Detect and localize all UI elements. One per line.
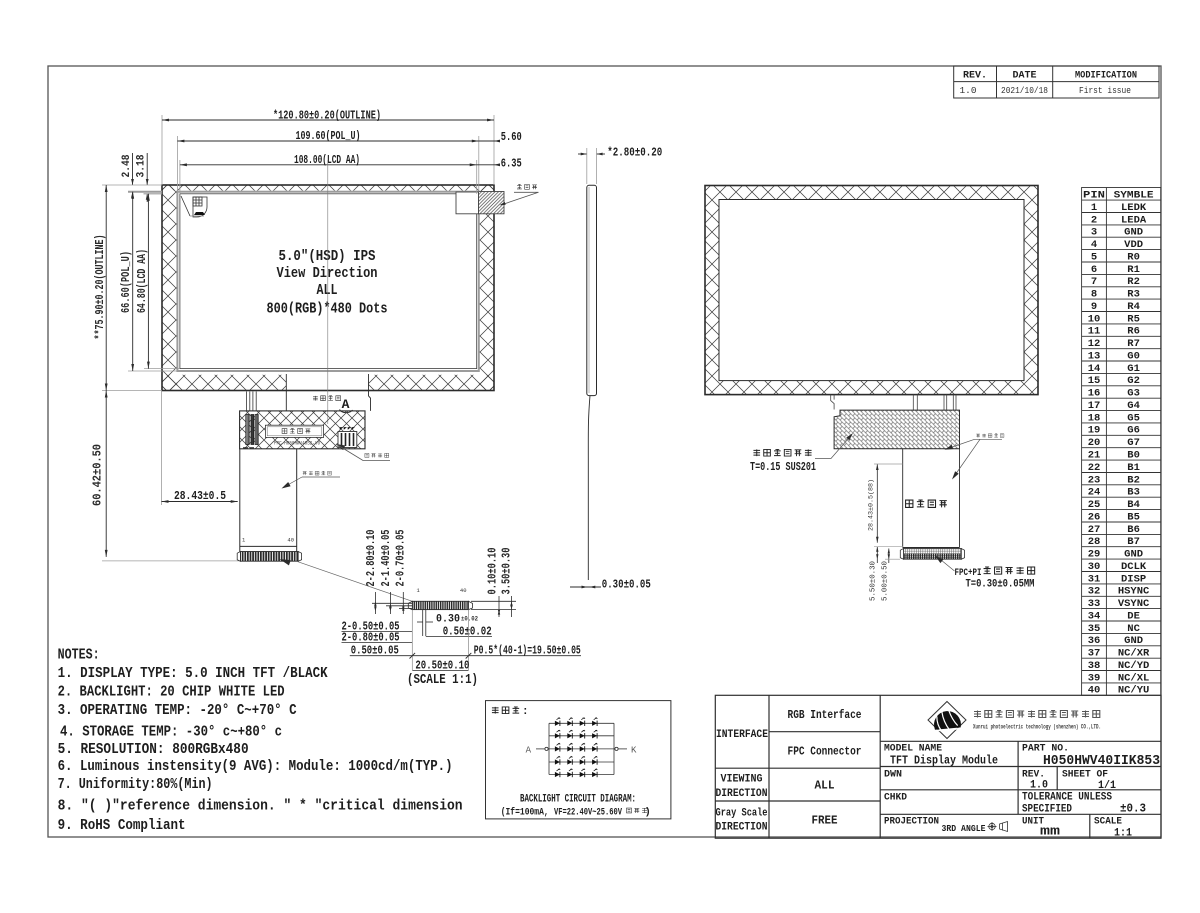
svg-text:3.18: 3.18 (136, 154, 148, 177)
svg-text:DIRECTION: DIRECTION (716, 822, 768, 834)
svg-text:15: 15 (1088, 375, 1101, 387)
svg-text:4: 4 (1091, 239, 1097, 251)
svg-text:NC: NC (1127, 623, 1140, 635)
svg-text:R6: R6 (1127, 326, 1140, 338)
svg-text:1: 1 (417, 587, 421, 594)
svg-text:INTERFACE: INTERFACE (716, 729, 768, 741)
svg-text:32: 32 (1088, 586, 1101, 598)
svg-text:R1: R1 (1127, 264, 1140, 276)
svg-text:DIRECTION: DIRECTION (716, 788, 768, 800)
svg-text:RGB Interface: RGB Interface (788, 709, 862, 722)
svg-text:18: 18 (1088, 412, 1101, 424)
svg-text:A: A (526, 746, 532, 756)
svg-text:*120.80±0.20(OUTLINE): *120.80±0.20(OUTLINE) (273, 108, 381, 122)
svg-text:FPC+PI: FPC+PI (955, 568, 982, 579)
svg-text:39: 39 (1088, 672, 1101, 684)
svg-text:VF=22.40V~25.60V: VF=22.40V~25.60V (554, 807, 622, 819)
svg-text:38: 38 (1088, 660, 1101, 672)
svg-text:14: 14 (1088, 363, 1101, 375)
svg-text:8. ″( )″reference dimension. ″: 8. ″( )″reference dimension. ″ * ″critic… (58, 799, 463, 815)
svg-text:13: 13 (1088, 351, 1101, 363)
svg-text:R3: R3 (1127, 289, 1140, 301)
svg-text:G5: G5 (1127, 412, 1140, 424)
svg-text:3: 3 (1091, 227, 1097, 239)
svg-text:G0: G0 (1127, 351, 1140, 363)
svg-text:1.0: 1.0 (960, 86, 977, 96)
svg-text:BACKLIGHT CIRCUIT DIAGRAM:: BACKLIGHT CIRCUIT DIAGRAM: (520, 794, 636, 806)
svg-text:LEDA: LEDA (1121, 214, 1147, 226)
svg-text:3.50±0.30: 3.50±0.30 (501, 547, 514, 594)
svg-text:FREE: FREE (812, 815, 838, 828)
svg-text:25: 25 (1088, 499, 1101, 511)
svg-text:G7: G7 (1127, 437, 1140, 449)
svg-text:19: 19 (1088, 425, 1101, 437)
svg-text:10: 10 (1088, 313, 1101, 325)
svg-text:View Direction: View Direction (277, 265, 378, 282)
svg-text:2-1.40±0.05: 2-1.40±0.05 (380, 529, 393, 586)
svg-text:6: 6 (1091, 264, 1097, 276)
svg-text:0.30: 0.30 (436, 614, 460, 626)
svg-text:2.48: 2.48 (121, 154, 133, 177)
svg-text:9: 9 (1091, 301, 1097, 313)
svg-text:8: 8 (1091, 289, 1097, 301)
svg-text:36: 36 (1088, 635, 1101, 647)
svg-text:21: 21 (1088, 450, 1101, 462)
svg-text:LEDK: LEDK (1121, 202, 1147, 214)
svg-text:NC/XR: NC/XR (1118, 648, 1150, 660)
svg-text:(SCALE 1:1): (SCALE 1:1) (407, 673, 478, 688)
svg-text:800(RGB)*480 Dots: 800(RGB)*480 Dots (267, 301, 388, 318)
svg-text:31: 31 (1088, 573, 1101, 585)
svg-text:33: 33 (1088, 598, 1101, 610)
svg-text:5.0″(HSD) IPS: 5.0″(HSD) IPS (279, 248, 376, 265)
svg-text:23: 23 (1088, 474, 1101, 486)
svg-text:SYMBLE: SYMBLE (1114, 190, 1154, 202)
svg-text:PIN: PIN (1083, 190, 1105, 202)
svg-text:TOLERANCE UNLESS: TOLERANCE UNLESS (1022, 792, 1112, 804)
svg-text:2-0.70±0.05: 2-0.70±0.05 (395, 529, 408, 586)
svg-text:REV.: REV. (963, 71, 987, 82)
svg-text:Gray Scale: Gray Scale (716, 808, 768, 820)
svg-text:R0: R0 (1127, 251, 1140, 263)
svg-text:109.60(POL_U): 109.60(POL_U) (296, 129, 361, 143)
svg-text:NC/XL: NC/XL (1118, 672, 1150, 684)
svg-text:SCALE: SCALE (1094, 817, 1122, 828)
svg-text:5.60: 5.60 (501, 130, 522, 144)
svg-text:MODIFICATION: MODIFICATION (1075, 71, 1137, 82)
svg-text:G2: G2 (1127, 375, 1140, 387)
svg-text:27: 27 (1088, 524, 1101, 536)
svg-text:6. Luminous instensity(9 AVG):: 6. Luminous instensity(9 AVG): Module: 1… (58, 759, 453, 775)
svg-text:0.10±0.10: 0.10±0.10 (487, 547, 500, 594)
svg-text:1: 1 (242, 537, 246, 544)
svg-text::: : (522, 706, 529, 718)
svg-text:B2: B2 (1127, 474, 1140, 486)
svg-text:T=0.30±0.05MM: T=0.30±0.05MM (966, 579, 1035, 591)
svg-text:K: K (631, 746, 637, 756)
svg-text:VIEWING: VIEWING (721, 774, 763, 786)
svg-text:B0: B0 (1127, 450, 1140, 462)
svg-text:B5: B5 (1127, 511, 1140, 523)
svg-text:FPC Connector: FPC Connector (788, 746, 862, 759)
svg-text:NC/YD: NC/YD (1118, 660, 1150, 672)
svg-text:FPC-H050HWV40S2-V0: FPC-H050HWV40S2-V0 (274, 441, 320, 447)
svg-text:28.43±0.5(88): 28.43±0.5(88) (868, 479, 875, 531)
svg-text:1/1: 1/1 (1098, 780, 1116, 792)
svg-text:26: 26 (1088, 511, 1101, 523)
svg-text:GND: GND (1124, 635, 1143, 647)
svg-text:5: 5 (1091, 251, 1097, 263)
svg-text:G4: G4 (1127, 400, 1140, 412)
svg-text:108.00(LCD AA): 108.00(LCD AA) (294, 153, 360, 167)
svg-text:H050HWV40IIK853: H050HWV40IIK853 (1043, 754, 1160, 769)
svg-text:*2.80±0.20: *2.80±0.20 (607, 146, 662, 160)
svg-text:34: 34 (1088, 610, 1101, 622)
svg-text:**75.90±0.20(OUTLINE): **75.90±0.20(OUTLINE) (93, 235, 107, 340)
svg-text:First issue: First issue (1079, 86, 1131, 96)
svg-text:17: 17 (1088, 400, 1101, 412)
svg-text:28.43±0.5: 28.43±0.5 (174, 489, 226, 503)
svg-text:1: 1 (1091, 202, 1097, 214)
svg-text:20: 20 (1088, 437, 1101, 449)
svg-text:3. OPERATING TEMP: -20° C~+70: 3. OPERATING TEMP: -20° C~+70° C (58, 703, 297, 719)
svg-text:): ) (645, 807, 651, 819)
svg-text:3RD ANGLE: 3RD ANGLE (942, 823, 986, 834)
svg-text:28: 28 (1088, 536, 1101, 548)
svg-text:NOTES:: NOTES: (58, 648, 100, 664)
svg-text:±0.3: ±0.3 (1120, 803, 1146, 816)
svg-text:Xunrui photoelectric technolog: Xunrui photoelectric technology (shenzhe… (973, 724, 1101, 731)
svg-text:DISP: DISP (1121, 573, 1146, 585)
svg-text:64.80(LCD AA): 64.80(LCD AA) (135, 249, 149, 313)
svg-text:1. DISPLAY TYPE: 5.0 INCH TFT: 1. DISPLAY TYPE: 5.0 INCH TFT /BLACK (58, 666, 328, 682)
svg-text:30: 30 (1088, 561, 1101, 573)
svg-text:R4: R4 (1127, 301, 1140, 313)
svg-text:12: 12 (1088, 338, 1101, 350)
svg-text:B4: B4 (1127, 499, 1140, 511)
svg-text:1.0: 1.0 (1030, 780, 1048, 792)
svg-text:5.00±0.50: 5.00±0.50 (882, 561, 890, 601)
svg-text:16: 16 (1088, 388, 1101, 400)
svg-text:MODEL NAME: MODEL NAME (884, 744, 942, 755)
svg-text:24: 24 (1088, 487, 1101, 499)
svg-text:2-2.80±0.10: 2-2.80±0.10 (365, 529, 378, 586)
svg-text:CHKD: CHKD (884, 793, 907, 804)
svg-text:R5: R5 (1127, 313, 1140, 325)
svg-text:(If=100mA,: (If=100mA, (501, 807, 549, 819)
svg-text:GND: GND (1124, 549, 1143, 561)
svg-text:VDD: VDD (1124, 239, 1143, 251)
svg-text:ALL: ALL (317, 282, 338, 299)
svg-text:SHEET OF: SHEET OF (1062, 770, 1108, 781)
svg-text:VSYNC: VSYNC (1118, 598, 1150, 610)
svg-text:DCLK: DCLK (1121, 561, 1147, 573)
svg-text:11: 11 (1088, 326, 1101, 338)
svg-text:2: 2 (1091, 214, 1097, 226)
svg-text:29: 29 (1088, 549, 1101, 561)
svg-text:±0.02: ±0.02 (461, 616, 478, 623)
svg-text:R7: R7 (1127, 338, 1140, 350)
svg-text:40: 40 (287, 537, 294, 544)
svg-text:DATE: DATE (1013, 71, 1037, 82)
svg-text:40: 40 (460, 587, 467, 594)
svg-text:B7: B7 (1127, 536, 1140, 548)
svg-text:60.42±0.50: 60.42±0.50 (91, 444, 105, 506)
svg-text:22: 22 (1088, 462, 1101, 474)
svg-text:4. STORAGE TEMP: -30° c~+80°: 4. STORAGE TEMP: -30° c~+80° c (60, 725, 282, 741)
svg-text:PART NO.: PART NO. (1022, 744, 1069, 755)
svg-text:0.30±0.05: 0.30±0.05 (602, 578, 651, 592)
svg-text:9. RoHS Compliant: 9. RoHS Compliant (58, 818, 186, 834)
svg-text:35: 35 (1088, 623, 1101, 635)
svg-text:mm: mm (1040, 824, 1060, 839)
svg-text:1:1: 1:1 (1114, 828, 1132, 840)
svg-text:B6: B6 (1127, 524, 1140, 536)
svg-text:G6: G6 (1127, 425, 1140, 437)
svg-text:2021/10/18: 2021/10/18 (1001, 86, 1048, 96)
svg-text:6.35: 6.35 (501, 157, 522, 171)
svg-text:HSYNC: HSYNC (1118, 586, 1150, 598)
svg-text:5.50±0.30: 5.50±0.30 (870, 561, 878, 601)
svg-text:B3: B3 (1127, 487, 1140, 499)
svg-text:DWN: DWN (884, 770, 902, 781)
svg-text:37: 37 (1088, 648, 1101, 660)
svg-text:5. RESOLUTION: 800RGBx480: 5. RESOLUTION: 800RGBx480 (58, 742, 249, 758)
svg-text:7. Uniformity:80%(Min): 7. Uniformity:80%(Min) (58, 777, 213, 793)
svg-text:SPECIFIED: SPECIFIED (1022, 804, 1072, 816)
svg-text:B1: B1 (1127, 462, 1140, 474)
svg-text:G3: G3 (1127, 388, 1140, 400)
svg-text:PROJECTION: PROJECTION (884, 817, 939, 828)
svg-text:G1: G1 (1127, 363, 1140, 375)
svg-text:T=0.15 SUS201: T=0.15 SUS201 (750, 460, 816, 474)
svg-text:GND: GND (1124, 227, 1143, 239)
svg-text:A: A (342, 397, 350, 412)
svg-text:TFT Display Module: TFT Display Module (890, 755, 998, 768)
svg-text:DE: DE (1127, 610, 1140, 622)
svg-text:R2: R2 (1127, 276, 1140, 288)
svg-text:2. BACKLIGHT: 20 CHIP WHITE L: 2. BACKLIGHT: 20 CHIP WHITE LED (58, 685, 285, 701)
svg-text:7: 7 (1091, 276, 1097, 288)
svg-text:ALL: ALL (815, 780, 835, 793)
svg-text:66.60(POL_U): 66.60(POL_U) (119, 251, 133, 313)
